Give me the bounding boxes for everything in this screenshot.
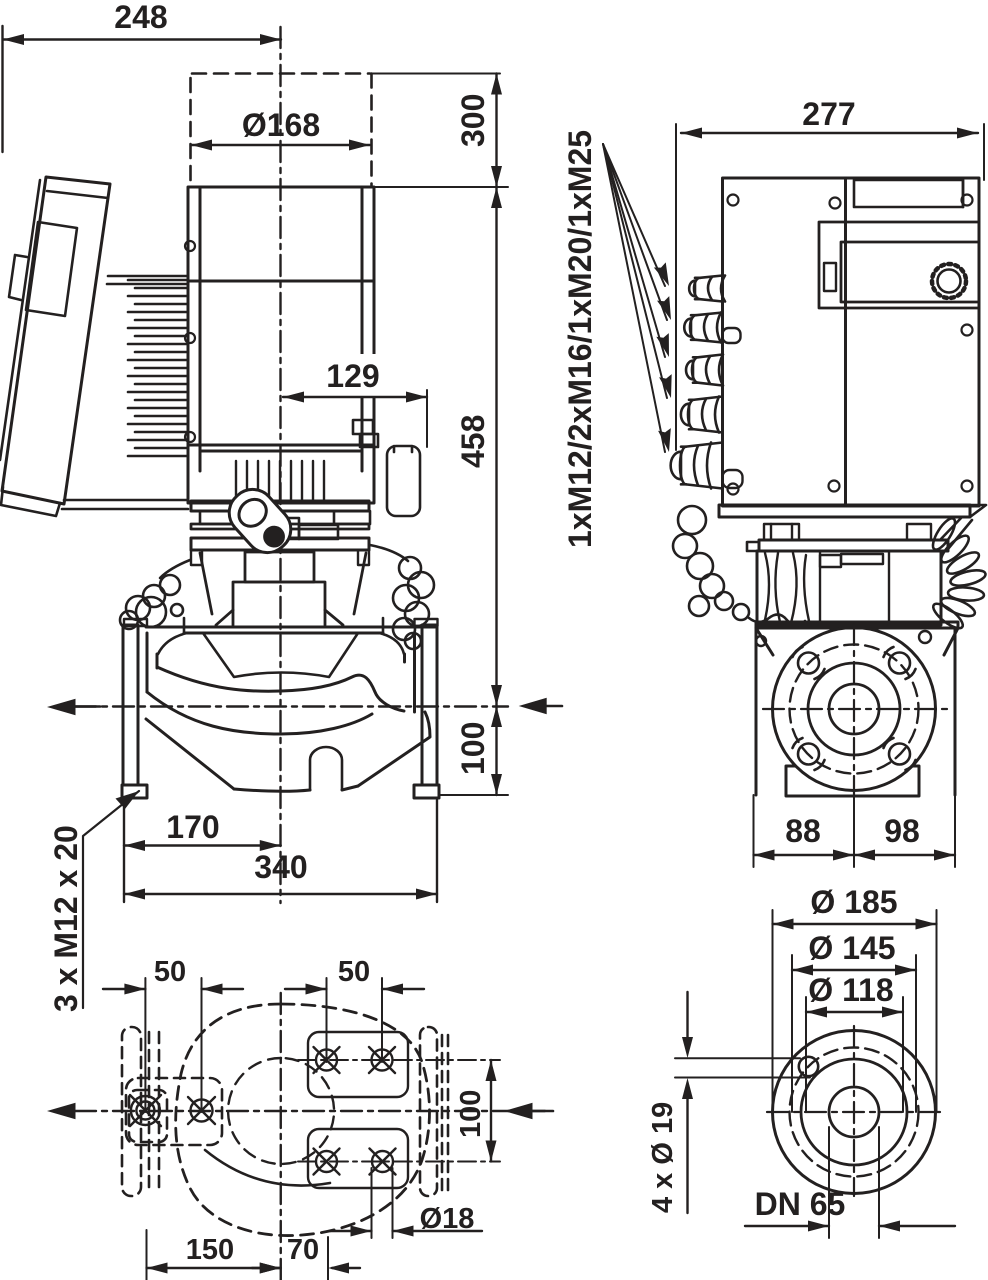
svg-text:100: 100 (455, 1090, 487, 1138)
svg-text:4 x Ø 19: 4 x Ø 19 (647, 1102, 679, 1213)
svg-text:300: 300 (455, 94, 491, 147)
svg-text:100: 100 (455, 722, 491, 775)
svg-text:129: 129 (326, 358, 379, 394)
svg-text:Ø 145: Ø 145 (808, 930, 895, 966)
svg-text:3 x M12 x 20: 3 x M12 x 20 (48, 825, 84, 1012)
svg-text:340: 340 (254, 849, 307, 885)
svg-text:1xM12/2xM16/1xM20/1xM25: 1xM12/2xM16/1xM20/1xM25 (562, 130, 598, 548)
svg-text:Ø 118: Ø 118 (808, 972, 893, 1008)
svg-text:458: 458 (455, 415, 491, 468)
svg-text:50: 50 (338, 956, 370, 988)
svg-text:88: 88 (785, 813, 821, 849)
svg-text:50: 50 (154, 956, 186, 988)
svg-text:248: 248 (114, 0, 167, 35)
svg-text:70: 70 (287, 1234, 319, 1266)
svg-text:98: 98 (884, 813, 920, 849)
svg-text:277: 277 (802, 96, 855, 132)
svg-text:DN 65: DN 65 (755, 1186, 846, 1222)
svg-text:Ø168: Ø168 (242, 107, 320, 143)
svg-text:Ø 185: Ø 185 (810, 884, 897, 920)
svg-text:150: 150 (186, 1234, 234, 1266)
svg-text:170: 170 (166, 809, 219, 845)
svg-text:Ø18: Ø18 (420, 1203, 475, 1235)
